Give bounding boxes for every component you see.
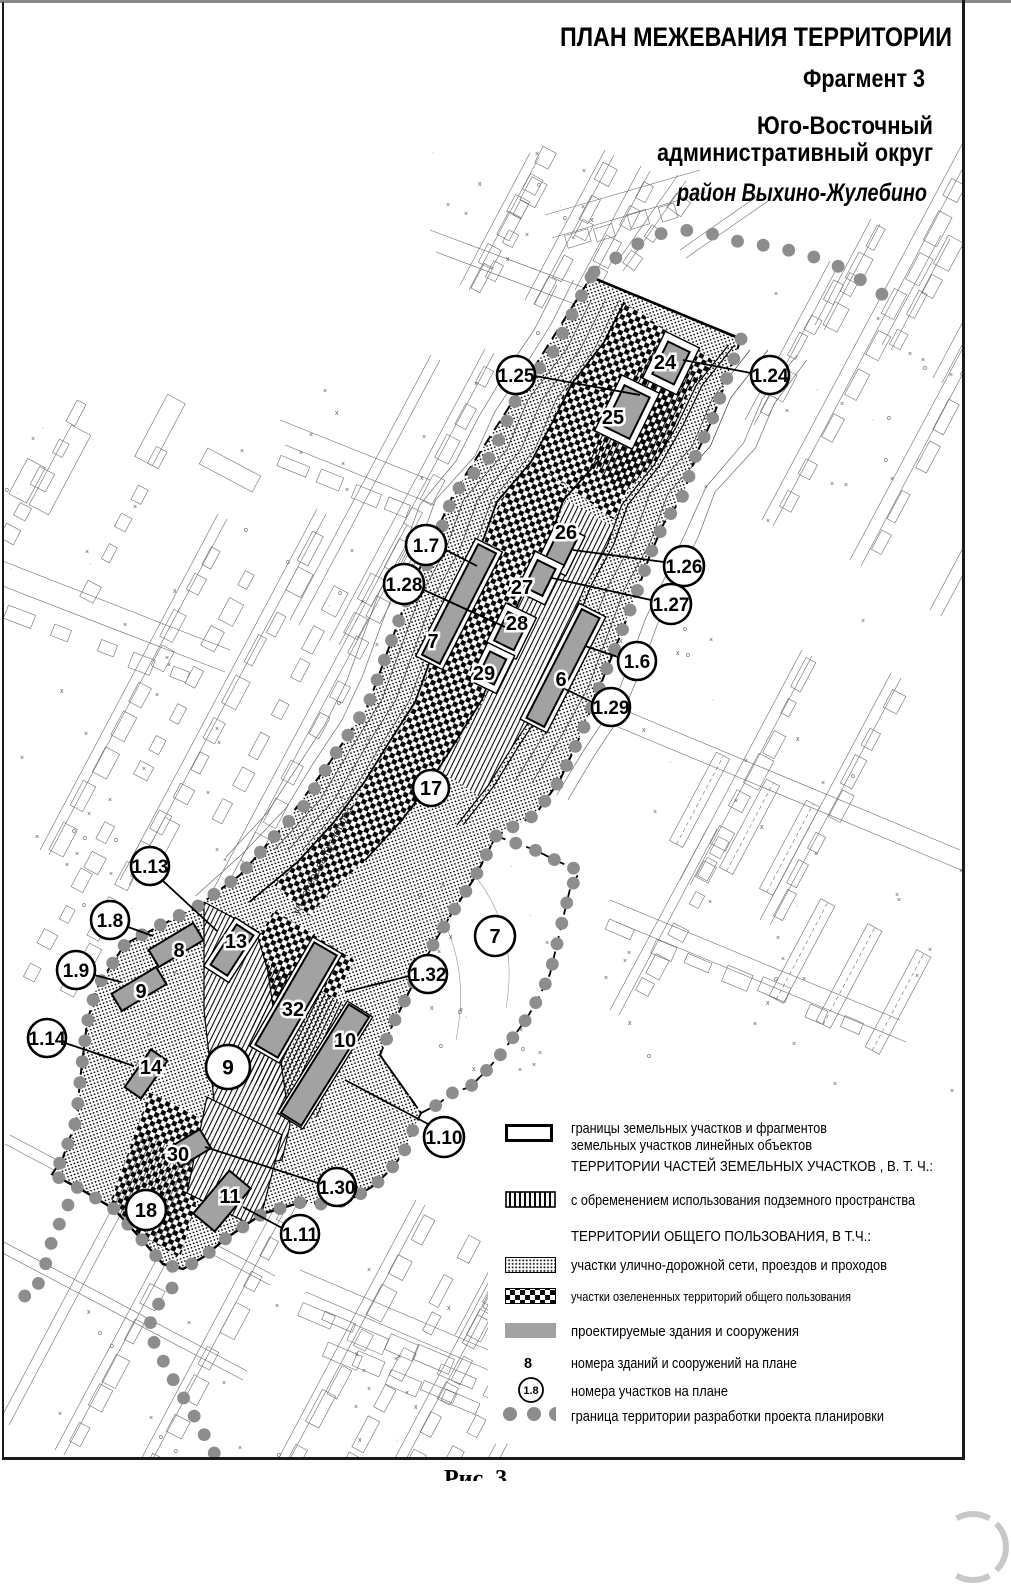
svg-text:участки улично-дорожной сети,: участки улично-дорожной сети, проездов и… (571, 1258, 887, 1274)
svg-text:земельных участков линейных об: земельных участков линейных объектов (571, 1138, 812, 1154)
svg-text:номера зданий и сооружений на: номера зданий и сооружений на плане (571, 1356, 797, 1372)
svg-text:8: 8 (524, 1356, 532, 1372)
svg-text:с обременением использования п: с обременением использования подземного … (571, 1193, 916, 1209)
svg-text:граница территории разработки: граница территории разработки проекта пл… (571, 1409, 884, 1425)
svg-text:1.8: 1.8 (523, 1385, 538, 1397)
svg-text:ТЕРРИТОРИИ ЧАСТЕЙ ЗЕМЕЛЬНЫХ УЧ: ТЕРРИТОРИИ ЧАСТЕЙ ЗЕМЕЛЬНЫХ УЧАСТКОВ , В… (571, 1157, 933, 1175)
svg-text:проектируемые здания и сооруже: проектируемые здания и сооружения (571, 1324, 799, 1340)
svg-text:границы земельных участков и ф: границы земельных участков и фрагментов (571, 1121, 827, 1137)
svg-text:ТЕРРИТОРИИ ОБЩЕГО ПОЛЬЗОВАНИЯ,: ТЕРРИТОРИИ ОБЩЕГО ПОЛЬЗОВАНИЯ, В Т.Ч.: (571, 1229, 871, 1245)
svg-text:номера участков на плане: номера участков на плане (571, 1384, 728, 1400)
svg-text:участки озелененных территорий: участки озелененных территорий общего по… (571, 1290, 851, 1304)
